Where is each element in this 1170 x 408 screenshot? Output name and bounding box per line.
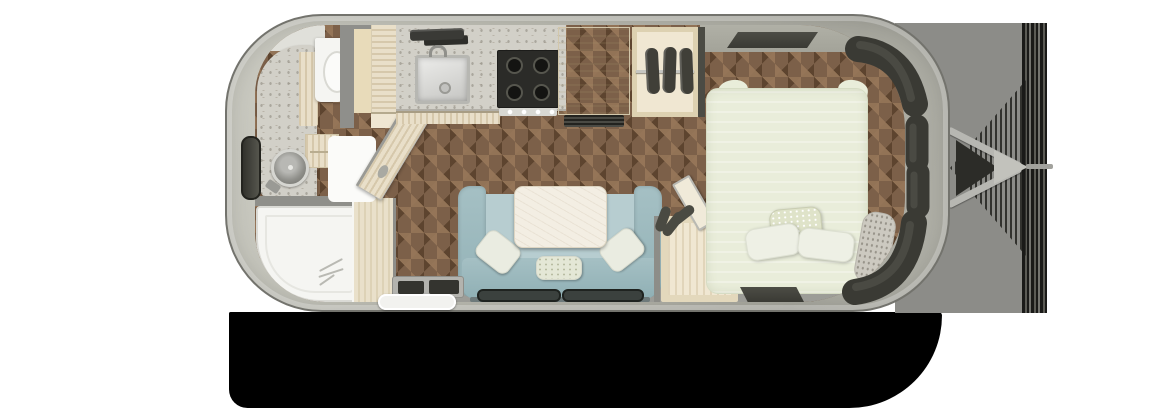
floorplan-canvas [0, 0, 1170, 408]
front-wrap-windows [0, 0, 1170, 408]
